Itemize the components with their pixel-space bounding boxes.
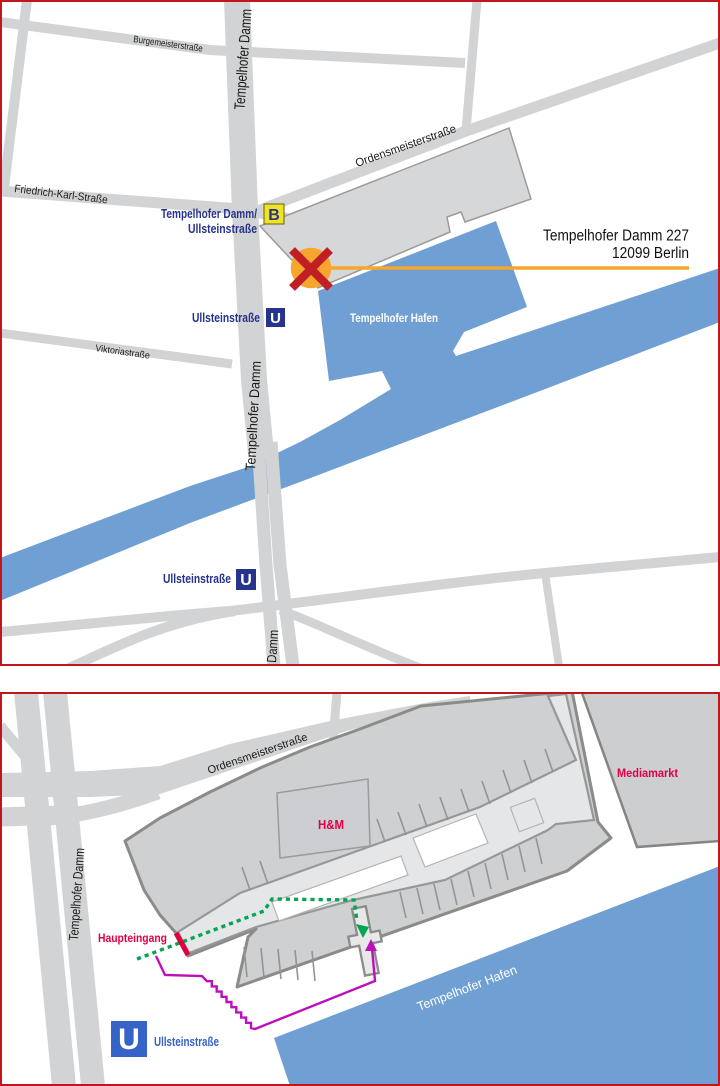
svg-text:12099 Berlin: 12099 Berlin bbox=[612, 245, 689, 262]
svg-text:Ullsteinstraße: Ullsteinstraße bbox=[163, 572, 231, 586]
svg-text:Ullsteinstraße: Ullsteinstraße bbox=[192, 311, 260, 325]
svg-text:H&M: H&M bbox=[318, 817, 344, 832]
svg-text:Ullsteinstraße: Ullsteinstraße bbox=[154, 1035, 219, 1049]
svg-text:Ullsteinstraße: Ullsteinstraße bbox=[188, 222, 257, 236]
svg-text:Tempelhofer Damm/: Tempelhofer Damm/ bbox=[161, 207, 257, 221]
svg-text:Damm: Damm bbox=[264, 629, 281, 663]
svg-text:B: B bbox=[268, 207, 280, 224]
svg-text:U: U bbox=[118, 1023, 140, 1056]
svg-text:Mediamarkt: Mediamarkt bbox=[617, 766, 678, 780]
svg-text:Haupteingang: Haupteingang bbox=[98, 931, 167, 945]
svg-text:U: U bbox=[270, 310, 281, 327]
svg-text:U: U bbox=[240, 572, 252, 589]
svg-text:Tempelhofer Damm 227: Tempelhofer Damm 227 bbox=[543, 228, 689, 245]
svg-text:Tempelhofer Hafen: Tempelhofer Hafen bbox=[350, 313, 438, 325]
